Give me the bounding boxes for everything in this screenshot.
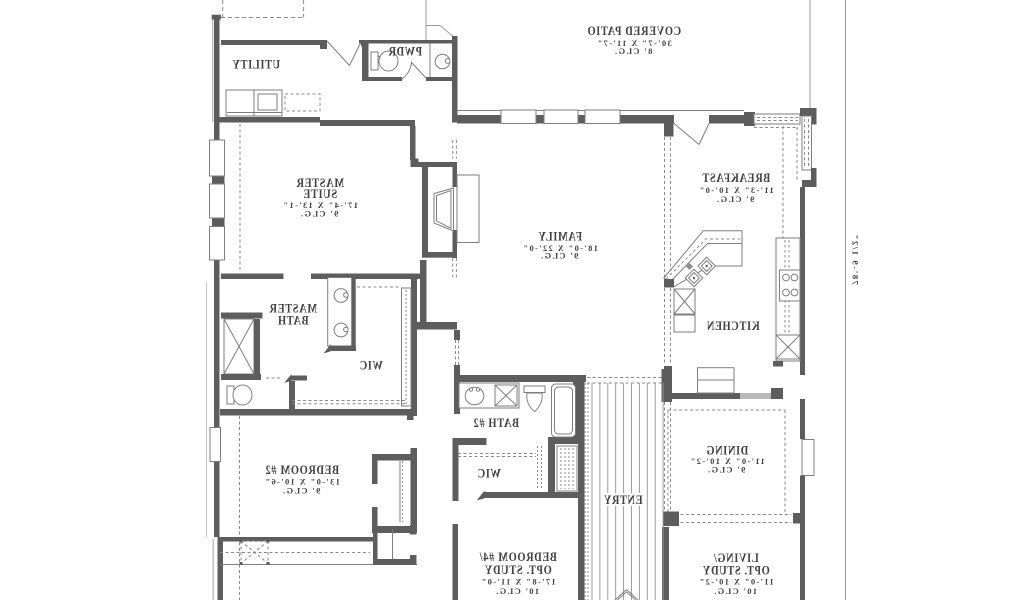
svg-text:13'-0" X 10'-6": 13'-0" X 10'-6" bbox=[264, 478, 340, 487]
svg-text:11'-3" X 10'-0": 11'-3" X 10'-0" bbox=[698, 186, 773, 195]
svg-text:10' CLG.: 10' CLG. bbox=[713, 587, 757, 596]
svg-text:9' CLG.: 9' CLG. bbox=[716, 195, 755, 204]
svg-text:9' CLG.: 9' CLG. bbox=[300, 210, 339, 219]
svg-text:BREAKFAST: BREAKFAST bbox=[702, 171, 771, 185]
svg-text:BEDROOM #2: BEDROOM #2 bbox=[265, 463, 339, 477]
svg-text:11'-0" X 10'-2": 11'-0" X 10'-2" bbox=[698, 578, 773, 587]
svg-text:DINING: DINING bbox=[706, 443, 749, 457]
svg-text:OPT. STUDY: OPT. STUDY bbox=[484, 563, 551, 577]
svg-text:BATH #2: BATH #2 bbox=[473, 416, 519, 430]
svg-text:KITCHEN: KITCHEN bbox=[706, 319, 760, 333]
svg-text:FAMILY: FAMILY bbox=[538, 229, 582, 243]
svg-text:9' CLG.: 9' CLG. bbox=[282, 487, 321, 496]
svg-text:17'-8" X 11'-0": 17'-8" X 11'-0" bbox=[480, 578, 555, 587]
svg-text:BATH: BATH bbox=[277, 313, 308, 327]
svg-text:WIC: WIC bbox=[477, 466, 501, 480]
svg-text:COVERED PATIO: COVERED PATIO bbox=[587, 24, 681, 38]
svg-text:8' CLG.: 8' CLG. bbox=[614, 47, 653, 56]
svg-text:PWDR: PWDR bbox=[388, 44, 422, 58]
svg-text:9' CLG.: 9' CLG. bbox=[540, 252, 579, 261]
svg-text:10' CLG.: 10' CLG. bbox=[495, 587, 539, 596]
svg-text:9' CLG.: 9' CLG. bbox=[707, 466, 746, 475]
svg-text:SUITE: SUITE bbox=[303, 187, 337, 201]
svg-text:78'-9 1/2": 78'-9 1/2" bbox=[851, 233, 861, 285]
svg-text:WIC: WIC bbox=[359, 358, 383, 372]
svg-text:UTILITY: UTILITY bbox=[232, 57, 280, 71]
svg-text:OPT. STUDY: OPT. STUDY bbox=[702, 563, 769, 577]
svg-text:ENTRY: ENTRY bbox=[603, 493, 642, 507]
